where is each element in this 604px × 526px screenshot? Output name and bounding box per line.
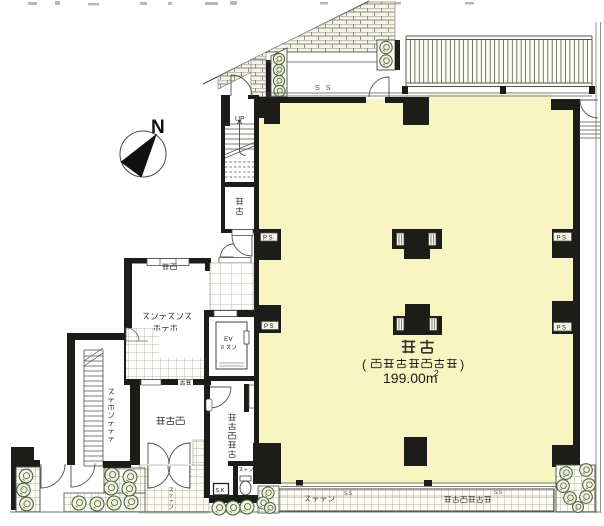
svg-text:S.S: S.S <box>494 490 503 496</box>
svg-text:P S: P S <box>557 326 567 332</box>
svg-text:S S: S S <box>315 85 332 92</box>
svg-text:2: 2 <box>434 368 439 378</box>
svg-text:EV: EV <box>224 336 233 343</box>
svg-text:S.K: S.K <box>216 488 225 494</box>
svg-text:P S: P S <box>264 324 274 330</box>
svg-text:P S: P S <box>263 236 273 242</box>
svg-text:P S: P S <box>557 236 567 242</box>
svg-text:199.00m: 199.00m <box>383 370 437 386</box>
svg-text:S.S: S.S <box>344 491 353 497</box>
svg-text:8: 8 <box>221 345 224 351</box>
svg-text:N: N <box>151 117 165 138</box>
svg-text:UP: UP <box>235 116 245 123</box>
svg-text:): ) <box>460 358 464 372</box>
